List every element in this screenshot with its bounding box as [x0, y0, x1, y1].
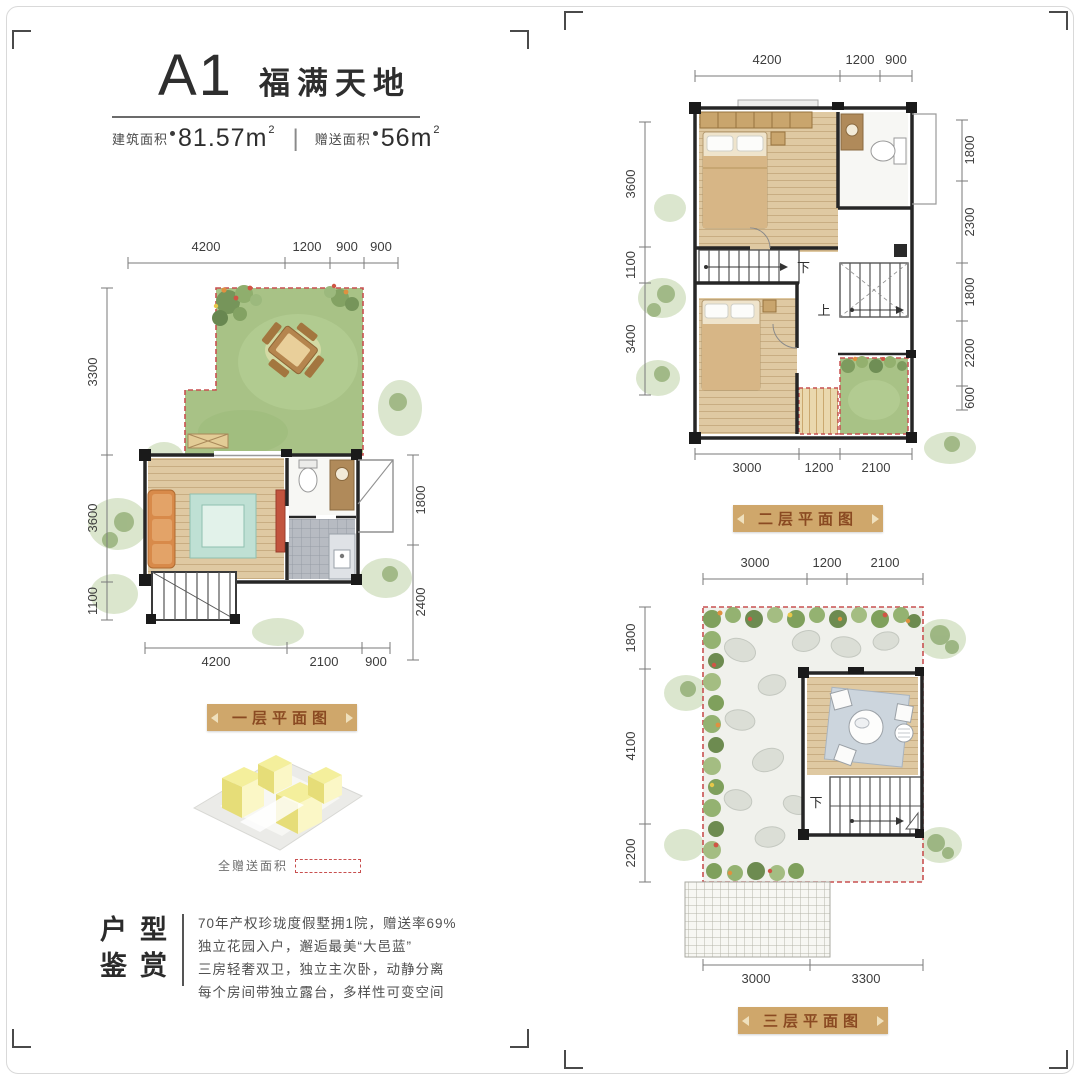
floor3-dims-bottom: 3000 3300 — [703, 959, 923, 986]
dim-label: 1800 — [962, 136, 977, 165]
dim-label: 1100 — [85, 587, 100, 615]
stairs-down-label: 下 — [797, 260, 810, 275]
description-divider — [182, 914, 184, 986]
page-title: A1 福满天地 — [158, 48, 411, 104]
floor2-plan: 下 上 — [600, 48, 1020, 488]
dim-label: 1800 — [623, 624, 638, 653]
corner-mark — [12, 1029, 31, 1048]
floor2-dims-right: 1800 2300 1800 2200 600 — [956, 120, 977, 410]
description-line: 70年产权珍珑度假墅拥1院，赠送率69% — [198, 912, 457, 935]
banner-ribbon-icon — [737, 514, 744, 524]
floor3-room: 下 — [798, 667, 924, 840]
dim-label: 2100 — [862, 460, 891, 475]
dim-label: 900 — [336, 239, 358, 254]
floor1-banner-label: 一层平面图 — [232, 707, 332, 728]
dim-label: 3600 — [623, 170, 638, 199]
gift-legend-dashed-box — [295, 859, 361, 873]
floor1-porch — [358, 460, 393, 532]
floor1-dims-bottom: 4200 2100 900 — [145, 642, 390, 669]
floor3-dims-top: 3000 1200 2100 — [703, 555, 923, 585]
area-summary: 建筑面积 81.57m2 | 赠送面积 56m2 — [112, 124, 442, 153]
gift-area-value: 56m — [381, 124, 433, 153]
description-title-line1: 户型 — [100, 912, 180, 948]
gift-area-sup: 2 — [433, 124, 439, 136]
garden-bench — [188, 434, 228, 448]
built-area-label: 建筑面积 — [112, 129, 168, 148]
dim-label: 3400 — [623, 325, 638, 354]
floor2-dims-left: 3600 1100 3400 — [623, 122, 651, 395]
floor2-deck — [799, 388, 838, 434]
banner-ribbon-icon — [211, 713, 218, 723]
corner-mark — [1049, 1050, 1068, 1069]
unit-description: 户型 鉴赏 70年产权珍珑度假墅拥1院，赠送率69% 独立花园入户，邂逅最美“大… — [100, 912, 480, 1004]
dim-label: 3000 — [733, 460, 762, 475]
corner-mark — [564, 1050, 583, 1069]
corner-mark — [564, 11, 583, 30]
area-separator: | — [293, 125, 299, 153]
corner-mark — [1049, 11, 1068, 30]
unit-code: A1 — [158, 48, 233, 104]
floorplan-poster: A1 福满天地 建筑面积 81.57m2 | 赠送面积 56m2 — [0, 0, 1080, 1080]
floor3-trellis-deck — [685, 882, 830, 957]
sofa — [148, 490, 175, 568]
site-illustration — [180, 742, 370, 854]
footnote-dot-icon — [170, 131, 175, 136]
floor1-dims-left: 3300 3600 1100 — [85, 288, 113, 620]
floor1-dims-top: 4200 1200 900 900 — [128, 239, 398, 269]
floor1-dims-right: 1800 2400 — [407, 455, 428, 660]
corner-mark — [510, 30, 529, 49]
corner-mark — [12, 30, 31, 49]
dim-label: 900 — [370, 239, 392, 254]
dim-label: 3000 — [742, 971, 771, 986]
toilet-icon — [299, 460, 317, 492]
kitchen-counter — [329, 534, 355, 579]
description-body: 70年产权珍珑度假墅拥1院，赠送率69% 独立花园入户，邂逅最美“大邑蓝” 三房… — [198, 912, 457, 1004]
dim-label: 600 — [962, 387, 977, 409]
banner-ribbon-icon — [742, 1016, 749, 1026]
floor1-banner: 一层平面图 — [207, 704, 357, 731]
floor2-stairs-down: 下 — [699, 250, 810, 283]
banner-ribbon-icon — [346, 713, 353, 723]
dim-label: 1800 — [413, 486, 428, 515]
wardrobe — [700, 112, 812, 128]
dim-label: 900 — [365, 654, 387, 669]
description-title-line2: 鉴赏 — [100, 948, 180, 984]
floor2-banner-label: 二层平面图 — [758, 508, 858, 529]
bath-vanity — [330, 460, 354, 510]
corner-mark — [510, 1029, 529, 1048]
banner-ribbon-icon — [877, 1016, 884, 1026]
floor2-house: 下 上 — [689, 100, 936, 444]
floor2-dims-top: 4200 1200 900 — [695, 52, 912, 82]
title-divider — [112, 116, 420, 118]
bath-vanity — [841, 114, 863, 150]
master-bed — [703, 132, 767, 228]
dim-label: 2100 — [310, 654, 339, 669]
built-area-value: 81.57m — [178, 124, 267, 153]
nightstand — [771, 132, 785, 145]
banner-ribbon-icon — [872, 514, 879, 524]
floor3-banner-label: 三层平面图 — [763, 1010, 863, 1031]
dim-label: 3000 — [741, 555, 770, 570]
floor2-garden — [840, 356, 908, 434]
dim-label: 2200 — [623, 839, 638, 868]
unit-name: 福满天地 — [259, 64, 411, 104]
tv-console — [276, 490, 285, 552]
dim-label: 4200 — [192, 239, 221, 254]
dim-label: 2300 — [962, 208, 977, 237]
stairs-up-label: 上 — [817, 303, 830, 318]
second-bed — [702, 300, 760, 390]
dim-label: 900 — [885, 52, 907, 67]
built-area-sup: 2 — [268, 124, 274, 136]
description-line: 每个房间带独立露台，多样性可变空间 — [198, 981, 457, 1004]
stairs-down-label: 下 — [809, 795, 822, 810]
dim-label: 1200 — [846, 52, 875, 67]
appliance — [894, 244, 907, 257]
floor1-house — [139, 449, 362, 586]
floor2-dims-bottom: 3000 1200 2100 — [695, 448, 912, 475]
dim-label: 2200 — [962, 339, 977, 368]
dim-label: 3300 — [852, 971, 881, 986]
gift-area-legend: 全赠送面积 — [218, 857, 361, 874]
dim-label: 3300 — [85, 358, 100, 387]
floor3-plan: 下 3000 1200 2100 1800 4100 — [600, 545, 1020, 1005]
dim-label: 1800 — [962, 278, 977, 307]
description-line: 三房轻奢双卫，独立主次卧，动静分离 — [198, 958, 457, 981]
garden-door-opening — [214, 451, 282, 458]
dim-label: 1200 — [805, 460, 834, 475]
gift-area-label: 赠送面积 — [315, 129, 371, 148]
footnote-dot-icon — [373, 131, 378, 136]
dim-label: 2100 — [871, 555, 900, 570]
coffee-table-rug — [190, 494, 256, 558]
floor2-banner: 二层平面图 — [733, 505, 883, 532]
dim-label: 2400 — [413, 588, 428, 617]
dim-label: 1100 — [623, 251, 638, 279]
description-title: 户型 鉴赏 — [100, 912, 180, 984]
nightstand — [763, 300, 776, 312]
floor3-dims-left: 1800 4100 2200 — [623, 607, 651, 882]
side-balcony — [912, 114, 936, 204]
floor1-garden — [185, 284, 363, 455]
dim-label: 4200 — [753, 52, 782, 67]
floor3-banner: 三层平面图 — [738, 1007, 888, 1034]
description-line: 独立花园入户，邂逅最美“大邑蓝” — [198, 935, 457, 958]
dim-label: 1200 — [293, 239, 322, 254]
dim-label: 1200 — [813, 555, 842, 570]
dim-label: 4100 — [623, 732, 638, 761]
dim-label: 4200 — [202, 654, 231, 669]
floor1-stairs — [146, 572, 240, 624]
gift-legend-label: 全赠送面积 — [218, 857, 288, 874]
floor1-plan: 4200 1200 900 900 3300 3600 1100 1800 24… — [68, 222, 498, 692]
dim-label: 3600 — [85, 504, 100, 533]
